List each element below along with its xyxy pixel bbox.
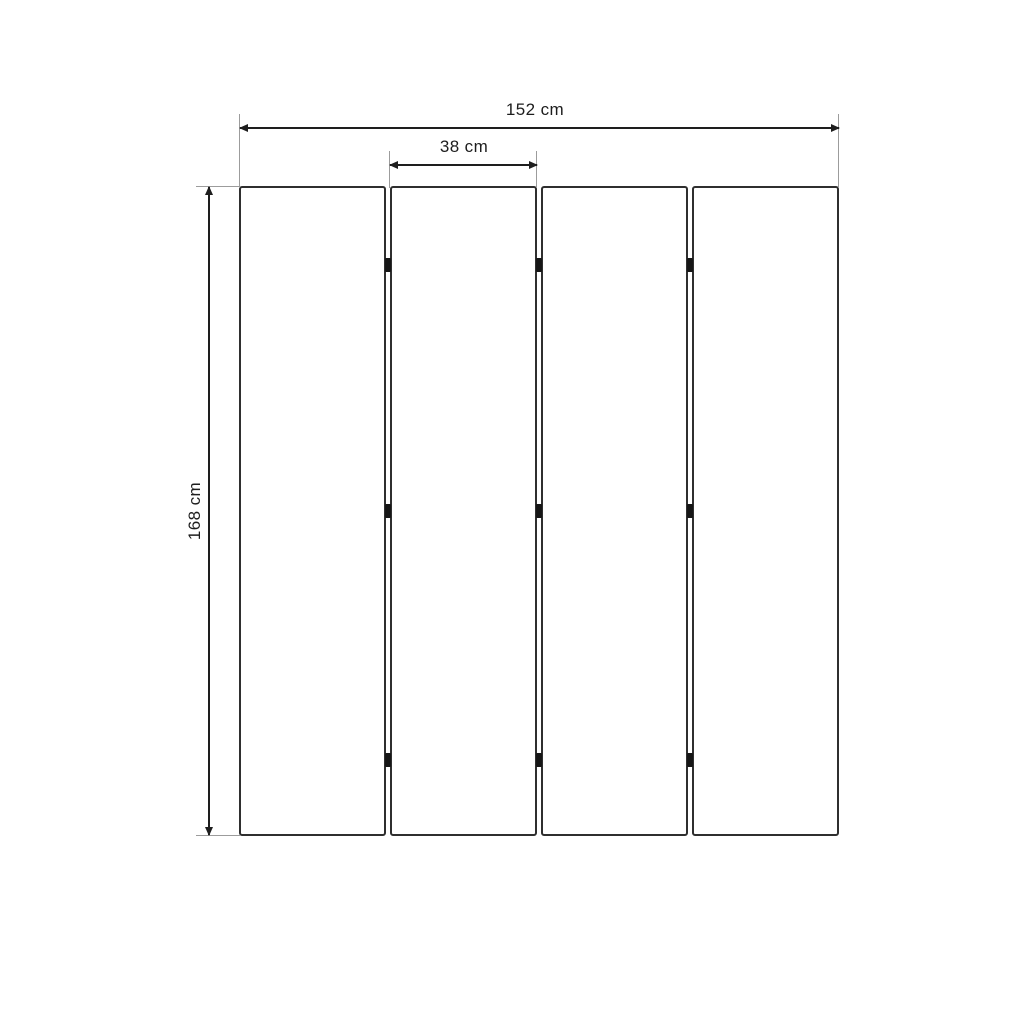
extension-line-height-bottom (196, 835, 240, 836)
screen-panel-2 (390, 186, 537, 836)
panel-width-dimension-label: 38 cm (404, 137, 524, 157)
hinge-mark (385, 504, 391, 518)
arrowhead-left-icon (239, 124, 248, 132)
arrowhead-up-icon (205, 186, 213, 195)
screen-panel-1 (239, 186, 386, 836)
arrowhead-left-icon (389, 161, 398, 169)
total-width-dimension-label: 152 cm (475, 100, 595, 120)
extension-line-height-top (196, 186, 240, 187)
panel-width-dimension-line (390, 164, 537, 166)
extension-line-panel-width-right (536, 151, 537, 188)
arrowhead-right-icon (529, 161, 538, 169)
hinge-mark (385, 258, 391, 272)
hinge-mark (536, 753, 542, 767)
extension-line-panel-width-left (389, 151, 390, 188)
height-dimension-line (208, 187, 210, 835)
total-width-dimension-line (240, 127, 839, 129)
arrowhead-down-icon (205, 827, 213, 836)
height-dimension-label: 168 cm (185, 466, 205, 556)
folding-screen-dimension-diagram: 152 cm 38 cm 168 cm (0, 0, 1024, 1024)
hinge-mark (536, 504, 542, 518)
hinge-mark (687, 258, 693, 272)
screen-panel-4 (692, 186, 839, 836)
hinge-mark (536, 258, 542, 272)
screen-panel-3 (541, 186, 688, 836)
arrowhead-right-icon (831, 124, 840, 132)
hinge-mark (687, 504, 693, 518)
hinge-mark (687, 753, 693, 767)
hinge-mark (385, 753, 391, 767)
